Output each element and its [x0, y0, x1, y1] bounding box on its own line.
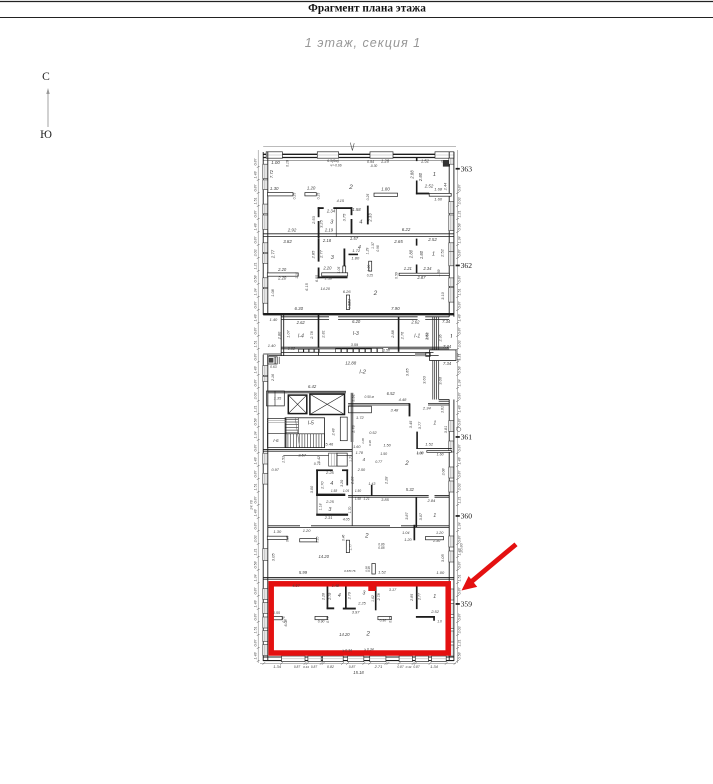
svg-text:2.80: 2.80 [408, 249, 413, 259]
svg-text:0.87: 0.87 [397, 665, 403, 669]
svg-text:1.60: 1.60 [437, 452, 444, 456]
svg-text:2.87: 2.87 [416, 275, 426, 280]
svg-text:I-6: I-6 [273, 438, 279, 443]
svg-text:0.25: 0.25 [317, 193, 321, 200]
svg-text:3: 3 [331, 255, 335, 261]
svg-text:1 этаж, секция 1: 1 этаж, секция 1 [305, 36, 421, 50]
svg-text:3.25: 3.25 [319, 219, 324, 228]
svg-text:2: 2 [404, 460, 409, 467]
svg-text:3: 3 [328, 507, 331, 513]
svg-text:1.20: 1.20 [367, 265, 371, 272]
svg-text:4.15: 4.15 [337, 199, 345, 203]
svg-text:3.77: 3.77 [418, 421, 422, 429]
svg-text:6.20: 6.20 [352, 319, 361, 324]
svg-text:3.10: 3.10 [441, 291, 445, 299]
svg-text:1.55: 1.55 [273, 611, 280, 615]
svg-text:2.36: 2.36 [438, 335, 442, 343]
svg-text:1.53: 1.53 [282, 456, 286, 463]
svg-text:0.87: 0.87 [254, 522, 258, 530]
svg-text:3: 3 [363, 591, 366, 597]
svg-text:3.03: 3.03 [254, 250, 258, 257]
svg-text:1.48: 1.48 [254, 367, 258, 374]
svg-text:2.65: 2.65 [393, 239, 403, 244]
svg-text:360: 360 [461, 512, 473, 521]
svg-text:2.18: 2.18 [322, 238, 332, 243]
svg-text:1.21: 1.21 [254, 406, 258, 413]
svg-text:2.28: 2.28 [322, 593, 326, 601]
svg-text:0.87: 0.87 [457, 249, 461, 257]
svg-text:0.87: 0.87 [294, 665, 300, 669]
svg-text:1.68: 1.68 [434, 187, 443, 192]
svg-text:I-1: I-1 [414, 333, 420, 339]
svg-text:2.77: 2.77 [270, 249, 275, 259]
svg-text:1.50: 1.50 [380, 452, 387, 456]
svg-text:3.45: 3.45 [409, 420, 413, 428]
svg-text:0.76: 0.76 [350, 569, 356, 573]
svg-text:2.34: 2.34 [422, 266, 432, 271]
svg-text:2.25: 2.25 [325, 499, 335, 504]
svg-text:0.88: 0.88 [378, 546, 384, 550]
svg-text:2.80: 2.80 [277, 331, 281, 340]
svg-text:Фрагмент плана этажа: Фрагмент плана этажа [308, 2, 426, 14]
svg-text:0.58: 0.58 [254, 276, 258, 283]
svg-text:6.05: 6.05 [315, 275, 319, 282]
svg-text:1.80: 1.80 [419, 250, 424, 259]
svg-text:0.87: 0.87 [254, 236, 258, 244]
svg-text:0.87: 0.87 [254, 587, 258, 595]
svg-text:Ю: Ю [40, 129, 52, 141]
svg-text:0.87: 0.87 [254, 327, 258, 335]
svg-text:1.50: 1.50 [383, 443, 391, 447]
svg-text:1.34: 1.34 [254, 432, 258, 439]
svg-text:1.62: 1.62 [371, 595, 375, 602]
svg-text:2.19: 2.19 [324, 228, 334, 233]
svg-text:6.77: 6.77 [457, 352, 461, 360]
svg-text:0.87: 0.87 [457, 561, 461, 569]
svg-text:0.75: 0.75 [326, 616, 330, 622]
svg-text:3.63: 3.63 [422, 375, 427, 384]
svg-text:2.62: 2.62 [296, 320, 306, 325]
svg-text:0.59: 0.59 [395, 272, 399, 279]
svg-text:0.87: 0.87 [254, 470, 258, 478]
svg-text:1.21: 1.21 [254, 263, 258, 270]
svg-text:0.87: 0.87 [457, 275, 461, 283]
svg-text:1.21: 1.21 [254, 549, 258, 556]
svg-text:2.84: 2.84 [427, 498, 437, 503]
svg-text:3.48: 3.48 [391, 407, 400, 412]
svg-text:0.87: 0.87 [254, 379, 258, 387]
svg-text:0.87: 0.87 [254, 639, 258, 647]
svg-text:12.88: 12.88 [345, 360, 357, 365]
svg-text:1.0: 1.0 [437, 620, 442, 624]
svg-text:1.04: 1.04 [402, 531, 409, 535]
svg-text:1.48: 1.48 [332, 584, 340, 588]
svg-text:1.21: 1.21 [404, 266, 412, 271]
svg-text:1.34: 1.34 [457, 380, 461, 387]
svg-text:1.48: 1.48 [254, 315, 258, 322]
svg-text:1.20: 1.20 [436, 531, 444, 535]
svg-text:2.78: 2.78 [310, 330, 314, 339]
svg-text:0.87: 0.87 [254, 210, 258, 218]
svg-text:3.61: 3.61 [441, 406, 445, 413]
svg-text:363: 363 [461, 164, 473, 173]
svg-text:1.21: 1.21 [457, 497, 461, 504]
svg-text:4.48: 4.48 [399, 397, 408, 402]
svg-text:1.78: 1.78 [356, 451, 364, 455]
svg-text:I: I [450, 333, 452, 339]
svg-text:1.51: 1.51 [254, 627, 258, 634]
svg-text:1.34: 1.34 [457, 237, 461, 244]
svg-text:1.40: 1.40 [270, 317, 279, 322]
svg-text:3.20: 3.20 [340, 480, 344, 487]
svg-text:1.70: 1.70 [348, 507, 352, 514]
svg-text:0.87: 0.87 [311, 665, 317, 669]
svg-text:3.81: 3.81 [444, 426, 448, 433]
svg-text:2.33: 2.33 [368, 213, 373, 223]
svg-text:2.77: 2.77 [418, 592, 422, 601]
svg-text:1.72: 1.72 [356, 415, 365, 420]
svg-text:5.91: 5.91 [351, 394, 356, 402]
svg-text:2.92: 2.92 [287, 228, 297, 233]
svg-text:0.96: 0.96 [367, 566, 371, 572]
svg-text:I-5: I-5 [308, 420, 314, 426]
svg-text:1.51: 1.51 [457, 289, 461, 296]
svg-text:2.85: 2.85 [310, 250, 315, 260]
svg-text:1.00: 1.00 [436, 570, 445, 575]
svg-text:1.07: 1.07 [287, 329, 291, 337]
svg-text:6.5(6м): 6.5(6м) [327, 159, 339, 163]
svg-text:0.25: 0.25 [316, 536, 320, 542]
svg-text:1.15: 1.15 [295, 272, 299, 279]
svg-text:0.90: 0.90 [318, 620, 325, 624]
svg-text:2.16: 2.16 [271, 374, 275, 382]
svg-text:5.32: 5.32 [406, 487, 415, 492]
svg-text:1.18: 1.18 [319, 503, 323, 510]
svg-text:2: 2 [373, 290, 378, 297]
svg-text:3.03: 3.03 [254, 536, 258, 543]
svg-text:3.75: 3.75 [342, 213, 347, 222]
svg-text:2.44: 2.44 [443, 183, 447, 191]
svg-text:3.06: 3.06 [438, 376, 443, 385]
svg-text:1.58: 1.58 [325, 275, 334, 280]
svg-text:1.58: 1.58 [331, 489, 337, 493]
svg-text:2.25: 2.25 [325, 470, 335, 475]
svg-text:362: 362 [461, 261, 473, 270]
svg-text:1: 1 [433, 513, 436, 519]
svg-text:0.25: 0.25 [367, 274, 373, 278]
svg-text:3.17: 3.17 [389, 588, 397, 592]
svg-text:1.60: 1.60 [353, 445, 361, 449]
svg-text:0.87: 0.87 [457, 327, 461, 335]
svg-text:0.90: 0.90 [368, 440, 372, 446]
svg-text:1.21: 1.21 [457, 640, 461, 647]
svg-text:1.34: 1.34 [254, 289, 258, 296]
svg-text:1.05: 1.05 [337, 267, 341, 274]
svg-text:1.48: 1.48 [457, 315, 461, 322]
svg-text:≥ 0.34: ≥ 0.34 [364, 648, 374, 652]
svg-text:0.77: 0.77 [375, 460, 383, 464]
svg-text:0.52: 0.52 [369, 431, 377, 435]
svg-text:359: 359 [461, 600, 473, 609]
svg-text:1: 1 [433, 172, 436, 178]
svg-text:7.34: 7.34 [443, 361, 452, 366]
svg-text:2.31: 2.31 [324, 515, 333, 520]
svg-text:1.52: 1.52 [378, 570, 387, 575]
svg-text:0.87: 0.87 [254, 301, 258, 309]
svg-text:0.50 м: 0.50 м [365, 395, 375, 399]
svg-text:2.28: 2.28 [384, 476, 388, 485]
svg-text:1.00: 1.00 [417, 452, 424, 456]
svg-text:4: 4 [363, 457, 366, 462]
svg-text:1.48: 1.48 [254, 224, 258, 231]
svg-text:1.30: 1.30 [273, 529, 282, 534]
svg-text:3.03: 3.03 [457, 484, 461, 491]
svg-text:2.52: 2.52 [427, 237, 437, 242]
svg-text:0.82: 0.82 [441, 160, 449, 164]
svg-text:1.40: 1.40 [268, 343, 277, 348]
svg-text:2.53: 2.53 [311, 215, 316, 225]
svg-text:1.21: 1.21 [363, 497, 369, 501]
svg-text:2.71: 2.71 [374, 664, 383, 669]
svg-text:2.70: 2.70 [321, 481, 325, 490]
svg-text:0.16: 0.16 [286, 160, 290, 167]
svg-text:4: 4 [359, 220, 362, 226]
svg-text:0.87: 0.87 [457, 470, 461, 478]
svg-text:ч=-0.66: ч=-0.66 [330, 163, 341, 167]
svg-text:6.08: 6.08 [284, 620, 288, 627]
svg-text:0.58: 0.58 [457, 653, 461, 660]
svg-text:2.62: 2.62 [410, 320, 420, 325]
svg-text:6.26: 6.26 [343, 289, 352, 294]
svg-text:1.34: 1.34 [273, 664, 282, 669]
svg-text:3.85: 3.85 [381, 497, 390, 502]
svg-text:1.48: 1.48 [254, 653, 258, 660]
svg-text:1.77: 1.77 [349, 544, 353, 551]
svg-text:1.60: 1.60 [434, 196, 443, 201]
svg-text:2: 2 [365, 631, 370, 638]
svg-text:1.05: 1.05 [343, 489, 349, 493]
svg-text:2.20: 2.20 [277, 275, 287, 280]
svg-text:1.37: 1.37 [371, 242, 375, 249]
svg-text:1.20: 1.20 [307, 186, 316, 191]
svg-text:0.87: 0.87 [254, 184, 258, 192]
svg-text:I-2: I-2 [359, 370, 367, 376]
svg-text:3.05: 3.05 [270, 553, 275, 562]
svg-text:1.48: 1.48 [254, 510, 258, 517]
svg-text:2.34: 2.34 [326, 208, 336, 213]
svg-text:3.59: 3.59 [351, 343, 359, 347]
svg-text:0.87: 0.87 [254, 158, 258, 166]
svg-text:2.85: 2.85 [410, 594, 414, 602]
svg-text:0.87: 0.87 [457, 184, 461, 192]
svg-text:6.15: 6.15 [305, 282, 309, 290]
svg-text:1.34: 1.34 [254, 575, 258, 582]
svg-text:1.51: 1.51 [457, 575, 461, 582]
svg-text:1.48: 1.48 [254, 458, 258, 465]
svg-text:0.46: 0.46 [342, 534, 346, 540]
svg-text:0.87: 0.87 [254, 444, 258, 452]
svg-text:4: 4 [338, 593, 341, 599]
svg-text:2.50: 2.50 [357, 468, 366, 472]
svg-text:1.00: 1.00 [361, 438, 365, 444]
svg-text:14.20: 14.20 [321, 287, 331, 291]
svg-text:4.57: 4.57 [292, 583, 301, 588]
svg-text:4: 4 [358, 245, 361, 251]
svg-text:3.07: 3.07 [419, 512, 423, 520]
svg-text:5.46: 5.46 [325, 441, 334, 446]
svg-text:2.52: 2.52 [439, 248, 444, 258]
svg-text:2.78: 2.78 [352, 424, 356, 433]
svg-text:2.88: 2.88 [391, 329, 395, 338]
svg-text:2: 2 [364, 533, 369, 540]
svg-text:1.30: 1.30 [270, 186, 279, 191]
svg-text:1.08: 1.08 [271, 288, 275, 296]
svg-text:0.87: 0.87 [457, 301, 461, 309]
svg-text:0.87: 0.87 [457, 392, 461, 400]
svg-text:15.18: 15.18 [353, 670, 364, 675]
svg-text:1.80: 1.80 [381, 187, 390, 192]
svg-text:3: 3 [330, 220, 334, 226]
svg-text:2.25: 2.25 [357, 602, 366, 606]
svg-text:4: 4 [330, 481, 333, 487]
svg-text:I-3: I-3 [353, 331, 359, 337]
svg-text:1.80: 1.80 [351, 256, 360, 261]
svg-text:0.44: 0.44 [406, 665, 412, 669]
svg-text:2.80: 2.80 [418, 172, 423, 182]
svg-text:2.81: 2.81 [321, 330, 325, 338]
svg-text:3.97: 3.97 [352, 610, 361, 615]
svg-text:0.98: 0.98 [376, 245, 380, 251]
svg-text:0.75: 0.75 [389, 616, 393, 622]
svg-text:20.80: 20.80 [460, 542, 464, 553]
svg-text:7.90: 7.90 [391, 306, 400, 311]
svg-text:1.00: 1.00 [271, 160, 280, 165]
svg-text:0.87: 0.87 [457, 587, 461, 595]
svg-text:1: 1 [432, 251, 435, 257]
svg-text:0.90: 0.90 [380, 619, 387, 623]
svg-text:2.52: 2.52 [424, 183, 434, 188]
svg-text:0.58: 0.58 [457, 224, 461, 231]
svg-text:0.44: 0.44 [303, 665, 309, 669]
svg-text:1.50: 1.50 [355, 489, 361, 493]
svg-text:0.87: 0.87 [254, 496, 258, 504]
svg-text:6.22: 6.22 [402, 227, 411, 232]
svg-text:0.87: 0.87 [254, 613, 258, 621]
svg-text:0.87: 0.87 [254, 353, 258, 361]
svg-text:3.03: 3.03 [457, 341, 461, 348]
svg-text:2.78: 2.78 [377, 593, 381, 601]
svg-text:2.20: 2.20 [277, 267, 287, 272]
svg-text:1: 1 [433, 594, 436, 600]
svg-text:3.03: 3.03 [254, 393, 258, 400]
svg-text:2: 2 [348, 184, 353, 191]
svg-text:С: С [42, 71, 50, 83]
svg-text:0.87: 0.87 [457, 613, 461, 621]
svg-text:2.34: 2.34 [422, 406, 432, 411]
svg-text:1.52: 1.52 [421, 158, 430, 163]
svg-text:1.02: 1.02 [288, 347, 296, 351]
svg-text:7.72: 7.72 [269, 169, 274, 178]
svg-text:1.52: 1.52 [425, 441, 434, 446]
svg-text:3.63: 3.63 [425, 333, 429, 340]
svg-text:0.87: 0.87 [413, 665, 419, 669]
svg-text:3.05: 3.05 [440, 554, 445, 563]
svg-text:0.63: 0.63 [270, 365, 277, 369]
svg-text:1.48: 1.48 [254, 172, 258, 179]
svg-text:7.34: 7.34 [442, 319, 451, 324]
svg-text:6.52: 6.52 [387, 391, 396, 396]
svg-text:2.76: 2.76 [401, 331, 405, 340]
svg-text:5.99: 5.99 [299, 570, 308, 575]
svg-text:0.87: 0.87 [457, 535, 461, 543]
svg-text:0.82: 0.82 [327, 665, 334, 669]
svg-text:1: 1 [433, 421, 436, 427]
svg-text:6.30: 6.30 [295, 306, 304, 311]
svg-text:3.65: 3.65 [404, 368, 409, 377]
svg-text:1.58: 1.58 [355, 497, 361, 501]
svg-text:1.30: 1.30 [433, 539, 441, 543]
svg-text:0.87: 0.87 [349, 665, 356, 669]
svg-text:0.25: 0.25 [293, 193, 297, 200]
svg-text:3.82: 3.82 [283, 239, 292, 244]
svg-text:0.58: 0.58 [254, 562, 258, 569]
svg-text:3.03: 3.03 [457, 627, 461, 634]
svg-text:1.43: 1.43 [368, 482, 375, 486]
svg-text:3.57: 3.57 [298, 453, 307, 458]
svg-text:1.34: 1.34 [457, 523, 461, 530]
svg-text:6.42: 6.42 [308, 384, 317, 389]
svg-text:1.21: 1.21 [457, 211, 461, 218]
svg-text:3.87: 3.87 [405, 512, 409, 520]
svg-text:1.48: 1.48 [254, 601, 258, 608]
svg-text:1.20: 1.20 [303, 528, 312, 533]
svg-text:1.73: 1.73 [349, 455, 353, 462]
svg-text:3.08: 3.08 [442, 469, 446, 476]
svg-text:2.48: 2.48 [332, 429, 336, 437]
svg-text:1.20: 1.20 [404, 538, 412, 542]
svg-text:0.25: 0.25 [286, 535, 290, 541]
svg-text:2.88: 2.88 [409, 170, 414, 180]
svg-text:0.58: 0.58 [457, 367, 461, 374]
svg-text:I-4: I-4 [298, 333, 304, 339]
svg-text:1.51: 1.51 [254, 198, 258, 205]
svg-text:361: 361 [461, 433, 473, 442]
svg-text:14.20: 14.20 [339, 632, 350, 637]
svg-text:2.52: 2.52 [430, 609, 440, 614]
svg-text:2.70: 2.70 [348, 592, 352, 600]
svg-text:1.29: 1.29 [366, 248, 370, 255]
svg-text:0.87: 0.87 [457, 418, 461, 426]
svg-text:7.34: 7.34 [443, 344, 452, 349]
svg-text:1.57: 1.57 [350, 236, 359, 241]
svg-text:24.78: 24.78 [250, 499, 254, 510]
svg-text:3.03: 3.03 [457, 198, 461, 205]
svg-text:1.59: 1.59 [437, 270, 441, 277]
svg-text:1.34: 1.34 [430, 664, 439, 669]
svg-text:0.25: 0.25 [366, 194, 370, 201]
svg-text:0.97: 0.97 [272, 468, 280, 472]
svg-text:1.50: 1.50 [383, 348, 390, 352]
svg-text:1.48: 1.48 [457, 458, 461, 465]
svg-text:1.28: 1.28 [381, 159, 390, 164]
svg-text:1.63: 1.63 [348, 302, 352, 309]
svg-text:1.48: 1.48 [457, 406, 461, 413]
svg-text:0.58: 0.58 [254, 419, 258, 426]
svg-text:14.20: 14.20 [318, 554, 329, 559]
svg-text:-0.30: -0.30 [370, 164, 378, 168]
svg-text:2.20: 2.20 [322, 266, 332, 271]
svg-text:2.20: 2.20 [350, 476, 354, 485]
